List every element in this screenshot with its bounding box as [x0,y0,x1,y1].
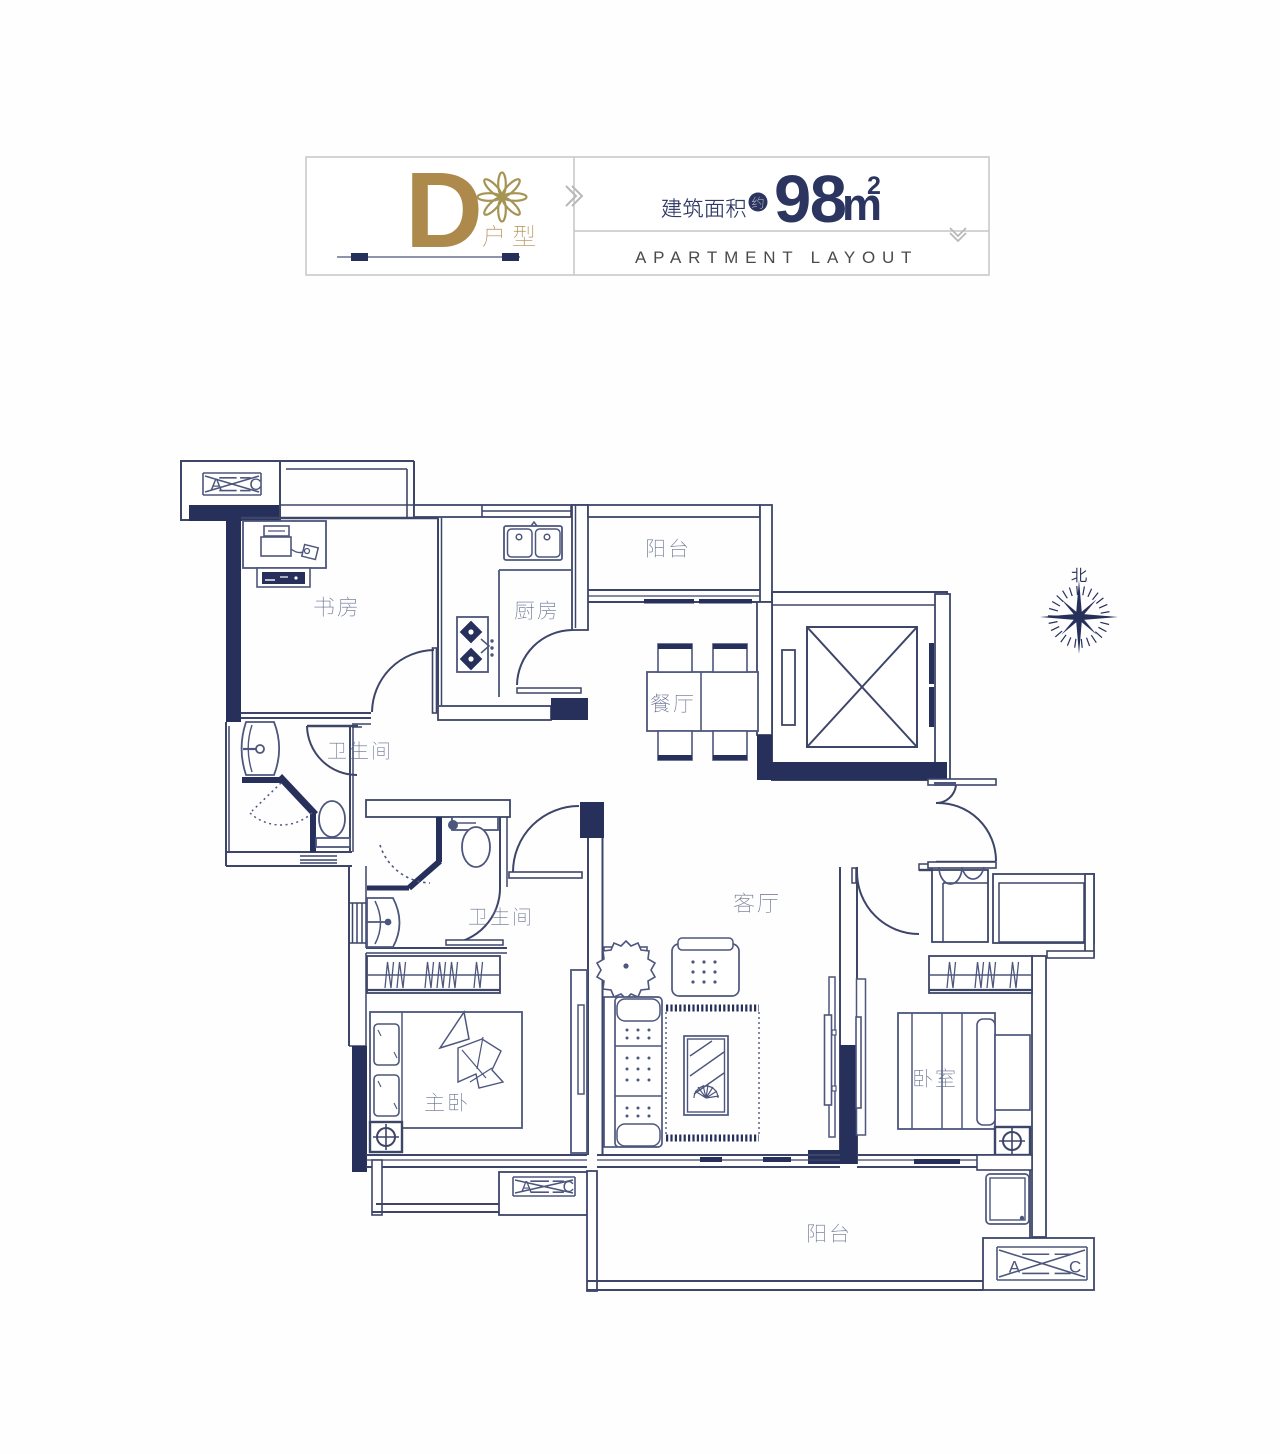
svg-text:APARTMENT LAYOUT: APARTMENT LAYOUT [635,248,918,267]
svg-text:A: A [211,475,223,494]
svg-text:C: C [249,475,261,494]
svg-text:A: A [521,1179,532,1196]
svg-text:C: C [563,1179,575,1196]
svg-text:2: 2 [867,172,881,200]
svg-text:A: A [1009,1258,1021,1277]
svg-text:98: 98 [774,162,846,237]
svg-text:D: D [405,149,483,270]
svg-text:C: C [1069,1258,1081,1277]
